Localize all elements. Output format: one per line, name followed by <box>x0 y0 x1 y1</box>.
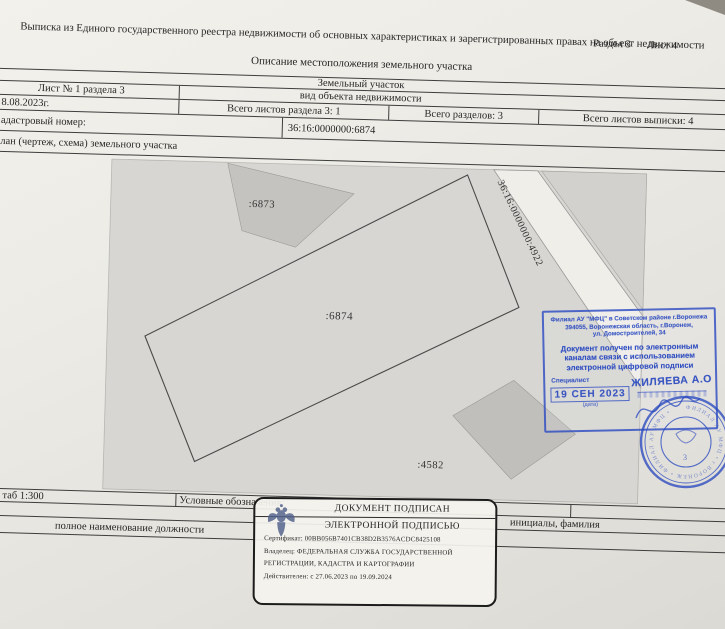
electronic-signature-box: ДОКУМЕНТ ПОДПИСАН ЭЛЕКТРОННОЙ ПОДПИСЬЮ С… <box>253 497 498 607</box>
owner-line2: РЕГИСТРАЦИИ, КАДАСТРА И КАРТОГРАФИИ <box>264 558 486 572</box>
eagle-emblem-icon <box>264 501 298 541</box>
parcel-6873-label: :6873 <box>249 199 276 211</box>
round-seal: ФИЛИАЛ АУ МФЦ • г.ВОРОНЕЖ • ФИЛИАЛ АУ МФ… <box>634 388 725 498</box>
divider <box>175 494 176 507</box>
sheet-info: Лист № 1 раздела 3 <box>38 83 125 96</box>
cadastral-label: адастровый номер: <box>1 114 86 127</box>
date-stamp: 19 СЕН 2023 <box>550 386 630 403</box>
total-sheets-of-extract: Всего листов выписки: 4 <box>583 113 694 127</box>
paper-sheet: Раздел 3 Лист 4 Выписка из Единого госуд… <box>0 0 725 580</box>
position-caption: полное наименование должности <box>27 520 231 537</box>
parcel-6874-label: :6874 <box>325 310 353 323</box>
mfc-body-line3: электронной цифровой подписи <box>548 360 712 373</box>
total-sheets-of-section: Всего листов раздела 3: 1 <box>227 103 341 117</box>
date-caption: (дата) <box>549 401 632 409</box>
cadastral-number: 36:16:0000000:6874 <box>288 122 376 135</box>
parcel-4582-label: :4582 <box>417 460 444 472</box>
specialist-name-stamp: ЖИЛЯЕВА А.О <box>631 372 712 388</box>
plan-row-label: лан (чертеж, схема) земельного участка <box>0 135 177 151</box>
seal-number: 3 <box>683 453 687 462</box>
photo-background-corner <box>685 0 725 15</box>
divider <box>570 505 571 518</box>
document-title: Выписка из Единого государственного реес… <box>0 19 725 52</box>
signed-line1: ДОКУМЕНТ ПОДПИСАН <box>289 499 495 515</box>
specialist-label: Специалист <box>548 376 631 385</box>
scale-label: таб 1:300 <box>2 490 44 502</box>
validity-line: Действителен: с 27.06.2023 по 19.09.2024 <box>264 571 486 585</box>
extract-date: 8.08.2023г. <box>1 96 49 108</box>
seal-center-emblem <box>676 430 696 443</box>
photographed-egrn-extract: Раздел 3 Лист 4 Выписка из Единого госуд… <box>0 0 725 629</box>
seal-circular-text: ФИЛИАЛ АУ МФЦ • г.ВОРОНЕЖ • ФИЛИАЛ АУ МФ… <box>649 405 723 479</box>
total-sections: Всего разделов: 3 <box>424 108 503 121</box>
